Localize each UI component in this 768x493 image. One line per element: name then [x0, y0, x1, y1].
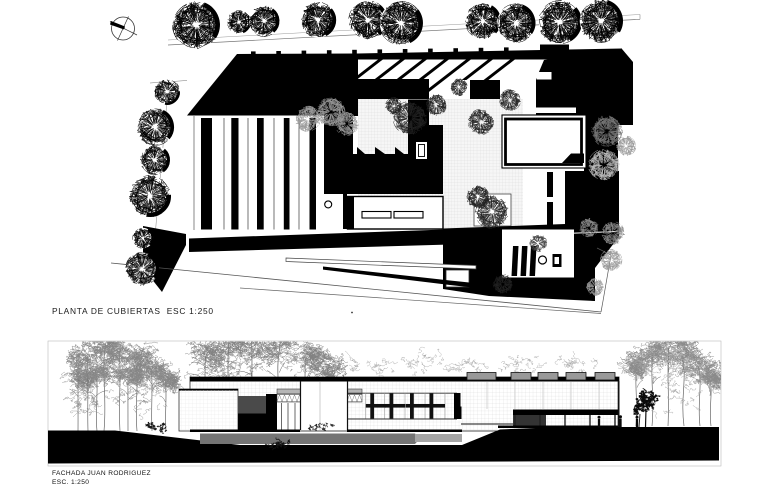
- svg-text:ESC. 1:250: ESC. 1:250: [52, 479, 89, 486]
- svg-text:FACHADA JUAN RODRIGUEZ: FACHADA JUAN RODRIGUEZ: [52, 470, 151, 477]
- svg-text:PLANTA DE CUBIERTAS ESC 1:250: PLANTA DE CUBIERTAS ESC 1:250: [52, 306, 214, 316]
